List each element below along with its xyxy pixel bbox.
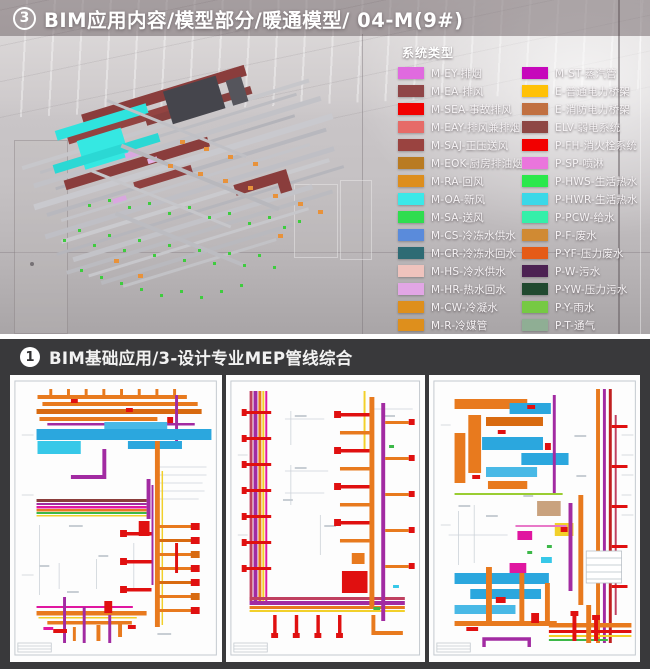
legend-swatch	[398, 247, 424, 259]
legend-swatch	[398, 265, 424, 277]
legend-item: M-EY-排烟	[398, 67, 522, 79]
mep-drawing-1-svg	[10, 375, 222, 662]
legend-column-1: M-EY-排烟 M-EA-排风 M-SEA-事故排风 M-EAY-排风兼排烟 M…	[398, 67, 522, 334]
legend-swatch	[522, 283, 548, 295]
legend-swatch	[398, 85, 424, 97]
legend-swatch	[522, 193, 548, 205]
bottom-section: 1 BIM基础应用/3-设计专业MEP管线综合	[0, 339, 650, 669]
legend-label: M-CS-冷冻水供水	[431, 228, 516, 243]
legend-swatch	[398, 319, 424, 331]
legend-item: M-R-冷媒管	[398, 319, 522, 331]
legend-swatch	[522, 85, 548, 97]
legend-label: E-普通电力桥架	[555, 84, 630, 99]
bottom-title-bar: 1 BIM基础应用/3-设计专业MEP管线综合	[0, 339, 650, 375]
legend-label: M-EAY-排风兼排烟	[431, 120, 521, 135]
top-section-title: BIM应用内容/模型部分/暖通模型/ 04-M(9#)	[44, 4, 464, 33]
legend-item: M-HS-冷水供水	[398, 265, 522, 277]
legend-item: P-T-通气	[522, 319, 650, 331]
legend-item: P-HWR-生活热水	[522, 193, 650, 205]
mep-drawing-2-svg	[226, 375, 424, 662]
legend-swatch	[522, 247, 548, 259]
legend-label: P-PCW-给水	[555, 210, 615, 225]
legend-swatch	[522, 103, 548, 115]
legend-item: M-RA-回风	[398, 175, 522, 187]
legend-swatch	[398, 301, 424, 313]
legend-swatch	[522, 67, 548, 79]
legend-item: ELV-弱电系统	[522, 121, 650, 133]
legend-item: P-YF-压力废水	[522, 247, 650, 259]
legend-swatch	[398, 175, 424, 187]
legend-column-2: M-ST-蒸汽管 E-普通电力桥架 E-消防电力桥架 ELV-弱电系统 P-FH…	[522, 67, 650, 334]
legend-swatch	[522, 139, 548, 151]
legend-label: P-F-废水	[555, 228, 597, 243]
legend-swatch	[522, 211, 548, 223]
legend-label: M-EOK-厨房排油烟	[431, 156, 523, 171]
legend-label: P-Y-雨水	[555, 300, 595, 315]
legend-item: M-ST-蒸汽管	[522, 67, 650, 79]
legend-item: M-HR-热水回水	[398, 283, 522, 295]
legend-label: M-OA-新风	[431, 192, 485, 207]
bim-3d-hvac-model	[18, 44, 378, 332]
drawing-sheets-row	[0, 375, 650, 662]
legend-item: M-EA-排风	[398, 85, 522, 97]
legend-label: M-ST-蒸汽管	[555, 66, 617, 81]
legend-label: P-YF-压力废水	[555, 246, 624, 261]
legend-label: M-CW-冷凝水	[431, 300, 498, 315]
system-type-legend: 系统类型 M-EY-排烟 M-EA-排风 M-SEA-事故排风 M-EAY-排风…	[398, 44, 650, 334]
legend-label: M-EY-排烟	[431, 66, 482, 81]
legend-title: 系统类型	[402, 44, 650, 61]
bottom-section-title: BIM基础应用/3-设计专业MEP管线综合	[49, 345, 353, 369]
legend-swatch	[522, 157, 548, 169]
legend-swatch	[398, 121, 424, 133]
legend-item: P-W-污水	[522, 265, 650, 277]
legend-item: M-EOK-厨房排油烟	[398, 157, 522, 169]
legend-item: M-SAJ-正压送风	[398, 139, 522, 151]
legend-label: M-HS-冷水供水	[431, 264, 506, 279]
legend-swatch	[398, 139, 424, 151]
legend-label: M-RA-回风	[431, 174, 484, 189]
legend-label: P-HWS-生活热水	[555, 174, 638, 189]
legend-swatch	[522, 121, 548, 133]
legend-label: P-SP-喷淋	[555, 156, 604, 171]
legend-label: M-SAJ-正压送风	[431, 138, 508, 153]
legend-swatch	[522, 319, 548, 331]
legend-item: E-普通电力桥架	[522, 85, 650, 97]
legend-item: P-F-废水	[522, 229, 650, 241]
legend-label: M-R-冷媒管	[431, 318, 487, 333]
legend-item: M-SEA-事故排风	[398, 103, 522, 115]
legend-item: P-Y-雨水	[522, 301, 650, 313]
mep-drawing-1	[10, 375, 222, 662]
legend-label: M-CR-冷冻水回水	[431, 246, 516, 261]
legend-label: P-HWR-生活热水	[555, 192, 638, 207]
legend-swatch	[398, 193, 424, 205]
legend-item: M-CR-冷冻水回水	[398, 247, 522, 259]
legend-swatch	[398, 211, 424, 223]
legend-item: P-PCW-给水	[522, 211, 650, 223]
section-number-badge: 3	[13, 7, 36, 30]
top-title-bar: 3 BIM应用内容/模型部分/暖通模型/ 04-M(9#)	[0, 0, 650, 36]
legend-swatch	[522, 301, 548, 313]
legend-item: P-FH-消火栓系统	[522, 139, 650, 151]
mep-drawing-3	[429, 375, 640, 662]
legend-item: M-OA-新风	[398, 193, 522, 205]
legend-item: M-CS-冷冻水供水	[398, 229, 522, 241]
legend-item: E-消防电力桥架	[522, 103, 650, 115]
legend-label: M-SA-送风	[431, 210, 484, 225]
legend-item: P-YW-压力污水	[522, 283, 650, 295]
section-number-badge: 1	[20, 347, 40, 367]
legend-label: P-T-通气	[555, 318, 595, 333]
legend-swatch	[398, 67, 424, 79]
legend-swatch	[522, 265, 548, 277]
legend-swatch	[398, 103, 424, 115]
legend-item: M-CW-冷凝水	[398, 301, 522, 313]
legend-swatch	[522, 175, 548, 187]
legend-item: P-SP-喷淋	[522, 157, 650, 169]
top-section: 系统类型 M-EY-排烟 M-EA-排风 M-SEA-事故排风 M-EAY-排风…	[0, 0, 650, 334]
legend-label: M-EA-排风	[431, 84, 484, 99]
legend-label: P-W-污水	[555, 264, 600, 279]
mep-drawing-3-svg	[429, 375, 640, 662]
legend-label: P-FH-消火栓系统	[555, 138, 637, 153]
legend-swatch	[522, 229, 548, 241]
legend-label: ELV-弱电系统	[555, 120, 620, 135]
legend-item: P-HWS-生活热水	[522, 175, 650, 187]
legend-item: M-EAY-排风兼排烟	[398, 121, 522, 133]
legend-label: M-SEA-事故排风	[431, 102, 512, 117]
legend-label: M-HR-热水回水	[431, 282, 506, 297]
mep-drawing-2	[226, 375, 424, 662]
legend-label: P-YW-压力污水	[555, 282, 628, 297]
legend-label: E-消防电力桥架	[555, 102, 630, 117]
legend-swatch	[398, 157, 424, 169]
legend-swatch	[398, 229, 424, 241]
legend-item: M-SA-送风	[398, 211, 522, 223]
legend-swatch	[398, 283, 424, 295]
